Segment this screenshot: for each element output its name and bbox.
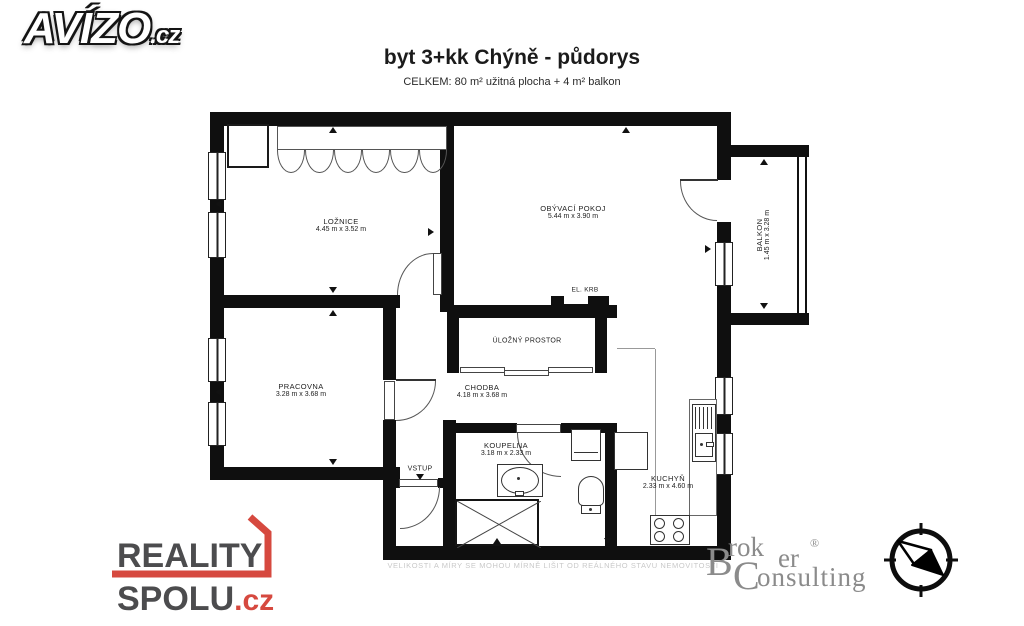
stove-burner <box>673 531 684 542</box>
broker-reg-mark: ® <box>810 537 819 549</box>
washing-machine-detail <box>574 452 598 453</box>
room-dims: 4.18 m x 3.68 m <box>457 392 507 401</box>
room-name: LOŽNICE <box>316 217 366 226</box>
washing-machine <box>571 429 601 461</box>
balcony-wall <box>731 145 809 157</box>
window <box>715 433 733 475</box>
shower-drain-mark <box>493 538 501 544</box>
spolu-text: SPOLU.cz <box>117 582 274 616</box>
wall <box>383 295 396 380</box>
reality-spolu-logo: REALITY SPOLU.cz <box>100 500 300 626</box>
tick-arrow <box>215 200 221 208</box>
room-label-koupelna: KOUPELNA 3.18 m x 2.33 m <box>481 441 531 459</box>
room-label-pracovna: PRACOVNA 3.28 m x 3.68 m <box>276 382 326 400</box>
tick-arrow <box>604 538 612 544</box>
reality-tld: .cz <box>234 584 274 617</box>
room-name: KUCHYŇ <box>643 474 693 483</box>
tick-arrow <box>416 474 424 480</box>
room-name: PRACOVNA <box>276 382 326 391</box>
room-dims: 4.45 m x 3.52 m <box>316 226 366 235</box>
wardrobe <box>227 124 269 168</box>
sink-faucet <box>515 491 524 496</box>
room-name: OBÝVACÍ POKOJ <box>540 204 606 213</box>
kitchen-sink-drain <box>700 443 703 446</box>
wall <box>383 546 731 560</box>
room-name: KOUPELNA <box>481 441 531 450</box>
room-dims: 2.33 m x 4.60 m <box>643 483 693 492</box>
door-arc <box>397 253 433 295</box>
screenshot: AVÍZO.cz byt 3+kk Chýně - půdorys CELKEM… <box>0 0 1024 626</box>
toilet <box>578 476 604 506</box>
tick-arrow <box>760 303 768 309</box>
tick-arrow <box>215 388 221 396</box>
door-arc <box>680 181 717 221</box>
sliding-door <box>548 367 593 373</box>
reality-word: REALITY <box>117 537 262 575</box>
room-dims: 1.45 m x 3.28 m <box>764 210 773 260</box>
room-name: BALKON <box>755 210 764 260</box>
wall <box>443 423 517 433</box>
broker-c: C <box>733 556 760 596</box>
broker-onsulting: onsulting <box>757 564 867 591</box>
closet-doors <box>277 150 447 173</box>
stove-burner <box>654 518 665 529</box>
wall <box>210 112 731 126</box>
stove-burner <box>673 518 684 529</box>
window <box>208 212 226 258</box>
fridge <box>614 432 648 470</box>
window <box>208 152 226 200</box>
compass-icon <box>883 522 963 602</box>
wall <box>447 305 459 373</box>
sink-drain <box>517 477 520 480</box>
kitchen-boundary-line <box>617 348 655 349</box>
wall <box>210 467 400 480</box>
wall <box>595 305 607 373</box>
room-label-chodba: CHODBA 4.18 m x 3.68 m <box>457 383 507 401</box>
storage-label: ÚLOŽNÝ PROSTOR <box>492 338 561 345</box>
window <box>208 402 226 446</box>
room-dims: 5.44 m x 3.90 m <box>540 213 606 222</box>
tick-arrow <box>329 127 337 133</box>
kitchen-faucet <box>706 442 714 447</box>
closet-shelf <box>277 126 447 150</box>
toilet-button <box>589 508 592 511</box>
tick-arrow <box>705 245 711 253</box>
wall <box>210 295 400 308</box>
door-arc <box>396 381 436 421</box>
tick-arrow <box>329 287 337 293</box>
door-leaf <box>384 381 395 420</box>
window <box>715 377 733 415</box>
balcony-wall <box>731 313 809 325</box>
wall <box>383 420 396 560</box>
room-name: CHODBA <box>457 383 507 392</box>
window <box>208 338 226 382</box>
tick-arrow <box>329 459 337 465</box>
balcony-railing <box>797 157 807 313</box>
door-leaf <box>516 424 561 433</box>
tick-arrow <box>760 159 768 165</box>
room-label-obyvaci-pokoj: OBÝVACÍ POKOJ 5.44 m x 3.90 m <box>540 204 606 222</box>
sliding-door <box>504 370 549 376</box>
entrance-door-leaf <box>399 479 438 487</box>
room-label-kuchyn: KUCHYŇ 2.33 m x 4.60 m <box>643 474 693 492</box>
reality-text: REALITY <box>117 539 262 573</box>
tick-arrow <box>622 127 630 133</box>
fireplace-label: EL. KRB <box>571 287 598 294</box>
balcony-door-opening <box>717 180 731 222</box>
wall <box>438 478 456 488</box>
sliding-door <box>460 367 505 373</box>
entrance-door-arc <box>400 487 440 529</box>
tick-arrow <box>428 228 434 236</box>
tick-arrow <box>329 310 337 316</box>
spolu-word: SPOLU <box>117 580 234 618</box>
window <box>715 242 733 286</box>
room-dims: 3.28 m x 3.68 m <box>276 391 326 400</box>
room-dims: 3.18 m x 2.33 m <box>481 450 531 459</box>
sink-drainer <box>695 407 713 429</box>
wall <box>383 478 400 488</box>
stove-burner <box>654 531 665 542</box>
room-label-balkon: BALKON 1.45 m x 3.28 m <box>755 210 773 260</box>
bathroom-sink-basin <box>501 467 539 494</box>
entrance-label: VSTUP <box>408 466 433 473</box>
door-leaf <box>433 253 442 295</box>
fireplace-niche-opening <box>564 296 588 304</box>
room-label-loznice: LOŽNICE 4.45 m x 3.52 m <box>316 217 366 235</box>
